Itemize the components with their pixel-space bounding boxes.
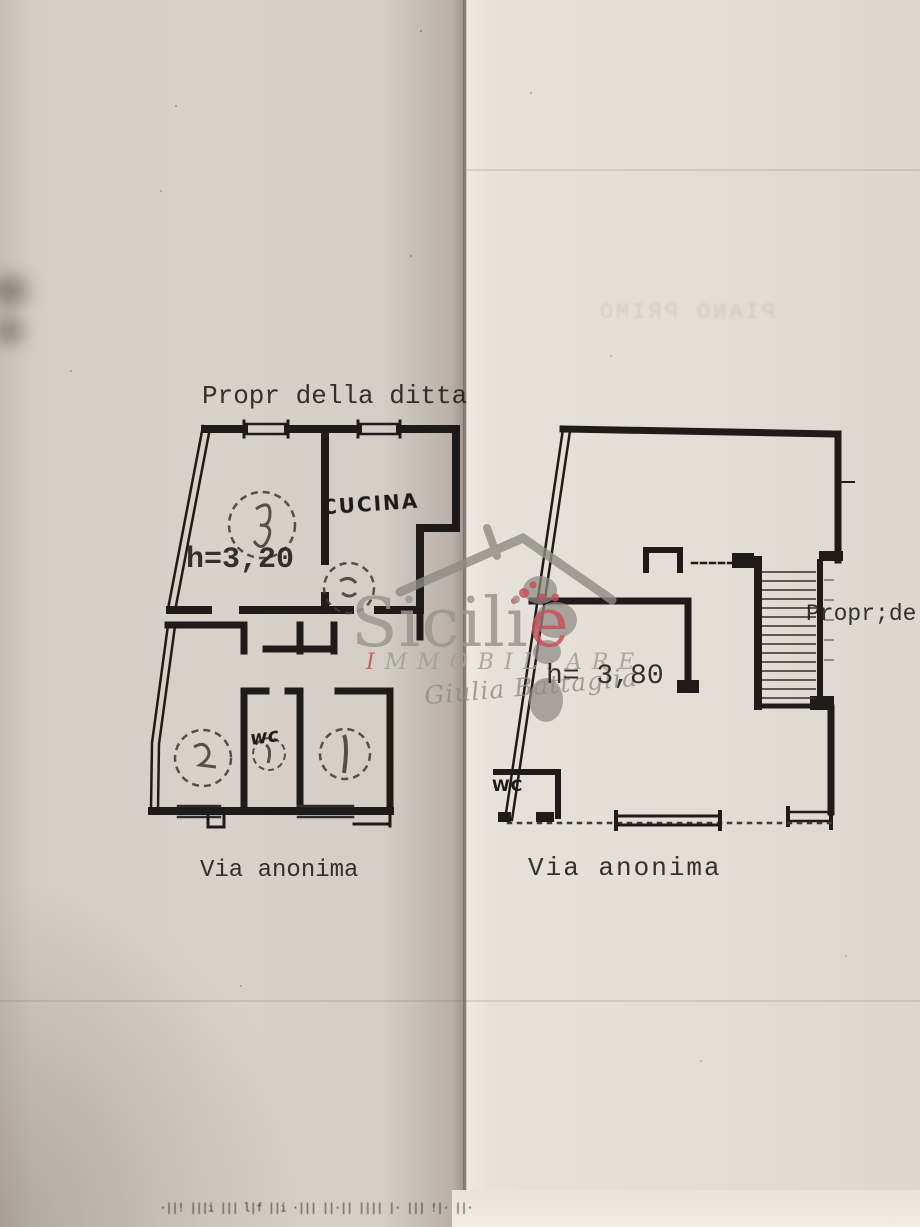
left-plan-wc-label: wc	[249, 724, 281, 750]
corner-shading	[0, 880, 320, 1227]
subtitle-accent-letter: I	[366, 650, 385, 675]
right-plan-wc-label: WC	[492, 776, 523, 795]
paper-speckles	[0, 0, 2, 2]
horizontal-crease-top	[466, 169, 920, 171]
left-plan-height-label: h=3,20	[186, 543, 294, 577]
scanned-floorplan-sheet: PIANO PRIMO	[0, 0, 920, 1227]
right-plan-owner-label: Propr;de	[806, 601, 916, 627]
right-plan-street-label: Via anonima	[528, 853, 722, 883]
footer-smudge: ·||! |||i ||| l|f ||i ·||| ||·|| |||| |·…	[160, 1202, 560, 1215]
left-plan-title: Propr della ditta	[202, 381, 467, 411]
right-plan-height-label: h= 3,80	[546, 661, 664, 692]
left-plan-street-label: Via anonima	[200, 857, 358, 884]
right-plan-stairs-hatching	[762, 572, 834, 698]
bleedthrough-text: PIANO PRIMO	[545, 300, 775, 325]
